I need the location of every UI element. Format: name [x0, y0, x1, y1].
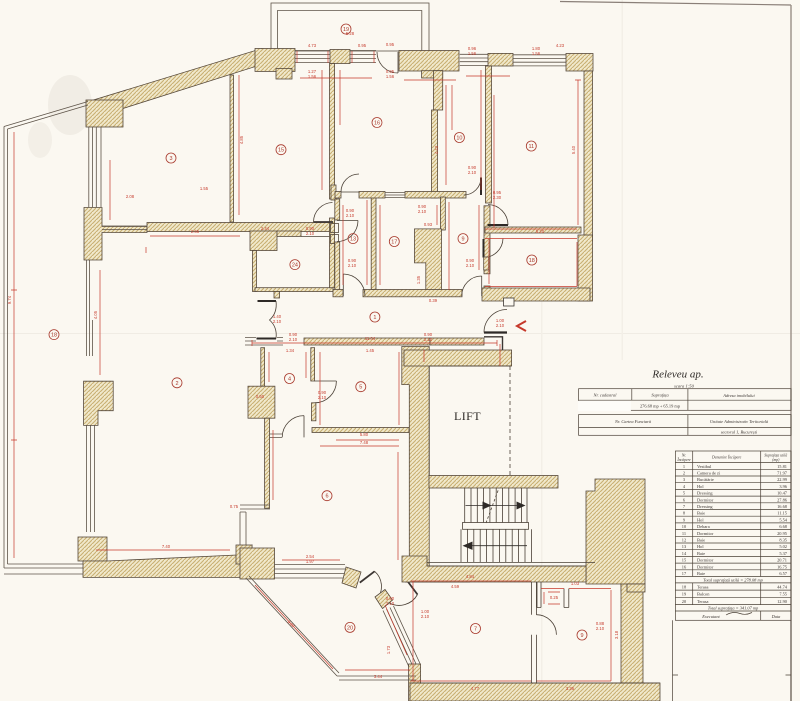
- svg-text:6: 6: [325, 494, 328, 500]
- svg-text:Balcon: Balcon: [697, 592, 710, 597]
- svg-text:4.23: 4.23: [556, 43, 565, 48]
- svg-text:22.99: 22.99: [777, 477, 788, 482]
- svg-text:2.10: 2.10: [289, 337, 298, 342]
- svg-text:44.74: 44.74: [777, 584, 788, 589]
- svg-text:2.10: 2.10: [468, 170, 477, 175]
- svg-text:16.68: 16.68: [777, 504, 788, 509]
- svg-text:11.04: 11.04: [365, 336, 376, 341]
- svg-text:2.10: 2.10: [466, 263, 475, 268]
- svg-text:(mp): (mp): [772, 458, 780, 462]
- svg-text:Nr. cadastral: Nr. cadastral: [593, 393, 618, 398]
- svg-text:3.36: 3.36: [566, 686, 575, 691]
- svg-text:16.75: 16.75: [777, 564, 788, 569]
- svg-text:Hol: Hol: [697, 484, 704, 489]
- svg-text:1.56: 1.56: [468, 51, 477, 56]
- svg-text:4.05: 4.05: [93, 310, 98, 319]
- svg-text:0.75: 0.75: [230, 504, 239, 509]
- svg-text:Adresa imobilului: Adresa imobilului: [722, 393, 755, 398]
- svg-text:Baie: Baie: [697, 551, 705, 556]
- svg-text:20.71: 20.71: [777, 558, 787, 563]
- svg-text:Hol: Hol: [697, 517, 704, 522]
- svg-text:6.57: 6.57: [779, 571, 787, 576]
- svg-text:9: 9: [580, 633, 583, 639]
- svg-text:2.65: 2.65: [191, 229, 200, 234]
- svg-text:2.10: 2.10: [496, 323, 505, 328]
- svg-text:16: 16: [374, 121, 380, 127]
- svg-text:Baie: Baie: [697, 538, 705, 543]
- svg-text:18: 18: [529, 258, 535, 264]
- svg-text:4.77: 4.77: [471, 686, 480, 691]
- svg-text:15: 15: [278, 148, 284, 154]
- svg-text:5.40: 5.40: [571, 145, 576, 154]
- svg-text:2.10: 2.10: [421, 614, 430, 619]
- svg-text:2.30: 2.30: [493, 195, 502, 200]
- svg-text:2.08: 2.08: [126, 194, 135, 199]
- svg-text:9.74: 9.74: [7, 295, 12, 304]
- svg-text:Suprafața utilă: Suprafața utilă: [764, 454, 787, 458]
- svg-text:Baie: Baie: [697, 571, 705, 576]
- svg-text:27.86: 27.86: [777, 497, 788, 502]
- svg-text:8.35: 8.35: [779, 538, 787, 543]
- svg-text:1.73: 1.73: [386, 645, 391, 654]
- svg-text:2.10: 2.10: [273, 319, 282, 324]
- svg-text:1.45: 1.45: [366, 348, 375, 353]
- svg-text:2.10: 2.10: [418, 209, 427, 214]
- svg-text:1: 1: [683, 464, 685, 469]
- svg-text:24: 24: [292, 263, 298, 269]
- svg-text:Debara: Debara: [697, 524, 710, 529]
- svg-text:3.18: 3.18: [614, 630, 619, 639]
- svg-text:Nr. Cartea Funciară: Nr. Cartea Funciară: [614, 419, 652, 424]
- svg-text:9: 9: [461, 237, 464, 243]
- svg-text:Data: Data: [771, 614, 782, 619]
- svg-text:Dormitor: Dormitor: [697, 531, 714, 536]
- svg-text:7.40: 7.40: [162, 544, 171, 549]
- svg-text:20: 20: [347, 625, 353, 631]
- svg-text:5.02: 5.02: [779, 544, 787, 549]
- svg-text:4.59: 4.59: [451, 584, 460, 589]
- svg-text:Dormitor: Dormitor: [697, 497, 714, 502]
- svg-text:7: 7: [474, 627, 477, 633]
- svg-text:2.10: 2.10: [348, 263, 357, 268]
- svg-text:4.84: 4.84: [466, 574, 475, 579]
- svg-text:11: 11: [528, 144, 534, 150]
- svg-text:Total suprafață utilă = 278.08: Total suprafață utilă = 278.08 mp: [703, 578, 763, 583]
- svg-text:4.43: 4.43: [434, 145, 439, 154]
- svg-text:1: 1: [373, 315, 376, 321]
- svg-text:11.15: 11.15: [777, 511, 788, 516]
- svg-text:1.55: 1.55: [200, 186, 209, 191]
- svg-text:Bucătărie: Bucătărie: [697, 477, 714, 482]
- svg-text:0.39: 0.39: [429, 298, 438, 303]
- svg-text:7.55: 7.55: [779, 592, 787, 597]
- svg-text:7.48: 7.48: [360, 440, 369, 445]
- svg-text:71.97: 71.97: [777, 471, 788, 476]
- svg-text:3.96: 3.96: [779, 484, 787, 489]
- svg-text:0.95: 0.95: [358, 43, 367, 48]
- svg-text:Dormitor: Dormitor: [697, 558, 714, 563]
- svg-text:18: 18: [51, 333, 57, 339]
- svg-text:Încăpere: Încăpere: [676, 457, 691, 462]
- svg-text:15.81: 15.81: [777, 464, 787, 469]
- svg-text:0.95: 0.95: [386, 42, 395, 47]
- svg-text:Total suprafața = 341.07 mp: Total suprafața = 341.07 mp: [708, 606, 759, 611]
- svg-text:Dressing: Dressing: [697, 504, 713, 509]
- svg-text:10.47: 10.47: [777, 491, 788, 496]
- svg-text:12.90: 12.90: [777, 599, 788, 604]
- svg-text:1.56: 1.56: [386, 74, 395, 79]
- svg-text:Dormitor: Dormitor: [697, 564, 714, 569]
- svg-text:1.34: 1.34: [286, 348, 295, 353]
- svg-text:0.50: 0.50: [256, 394, 265, 399]
- svg-text:2.10: 2.10: [424, 337, 433, 342]
- svg-text:6.68: 6.68: [779, 524, 787, 529]
- svg-text:Nr.: Nr.: [681, 454, 687, 458]
- svg-text:20.95: 20.95: [777, 531, 788, 536]
- svg-text:1.56: 1.56: [308, 74, 317, 79]
- svg-text:Vestibul: Vestibul: [697, 464, 712, 469]
- svg-text:Suprafața: Suprafața: [651, 393, 669, 398]
- svg-text:10: 10: [456, 136, 462, 142]
- svg-text:4.73: 4.73: [308, 43, 317, 48]
- svg-text:4: 4: [288, 377, 291, 383]
- svg-text:scara 1:50: scara 1:50: [674, 384, 694, 389]
- svg-text:12: 12: [682, 538, 686, 543]
- svg-text:4.85: 4.85: [239, 135, 244, 144]
- svg-text:Executant: Executant: [701, 614, 720, 619]
- svg-text:1.97: 1.97: [306, 559, 315, 564]
- svg-text:Baie: Baie: [697, 511, 705, 516]
- svg-text:Denumire Încăpere: Denumire Încăpere: [711, 455, 742, 460]
- svg-text:2: 2: [683, 471, 685, 476]
- svg-text:0.93: 0.93: [424, 222, 433, 227]
- svg-text:5.20: 5.20: [536, 229, 545, 234]
- svg-text:1.03: 1.03: [571, 581, 580, 586]
- svg-text:11: 11: [682, 531, 686, 536]
- svg-text:2.10: 2.10: [386, 601, 395, 606]
- svg-text:Releveu ap.: Releveu ap.: [651, 369, 703, 381]
- svg-text:1.35: 1.35: [416, 275, 421, 284]
- svg-text:2.10: 2.10: [596, 626, 605, 631]
- svg-text:13: 13: [350, 237, 356, 243]
- svg-text:1.56: 1.56: [532, 51, 541, 56]
- svg-text:19: 19: [343, 27, 349, 33]
- svg-text:Dressing: Dressing: [697, 491, 713, 496]
- svg-text:5.37: 5.37: [779, 551, 787, 556]
- svg-text:17: 17: [391, 240, 397, 246]
- svg-text:2.44: 2.44: [261, 226, 270, 231]
- svg-text:Camera de zi: Camera de zi: [697, 471, 721, 476]
- svg-text:5.80: 5.80: [360, 432, 369, 437]
- svg-text:Unitate Administrativ Teritori: Unitate Administrativ Teritorială: [710, 419, 769, 424]
- svg-text:LIFT: LIFT: [454, 409, 481, 423]
- svg-text:0.25: 0.25: [550, 595, 559, 600]
- svg-text:Terasa: Terasa: [697, 599, 708, 604]
- svg-text:276.68 mp + 65.19 mp: 276.68 mp + 65.19 mp: [640, 403, 681, 408]
- svg-text:3.44: 3.44: [374, 674, 383, 679]
- svg-text:2: 2: [175, 381, 178, 387]
- svg-text:5: 5: [359, 385, 362, 391]
- svg-text:Terasa: Terasa: [697, 584, 708, 589]
- svg-text:5.54: 5.54: [779, 517, 787, 522]
- svg-text:2.10: 2.10: [318, 395, 327, 400]
- svg-text:Hol: Hol: [697, 544, 704, 549]
- svg-text:2.10: 2.10: [306, 231, 315, 236]
- svg-text:3: 3: [169, 156, 172, 162]
- svg-text:2.10: 2.10: [346, 213, 355, 218]
